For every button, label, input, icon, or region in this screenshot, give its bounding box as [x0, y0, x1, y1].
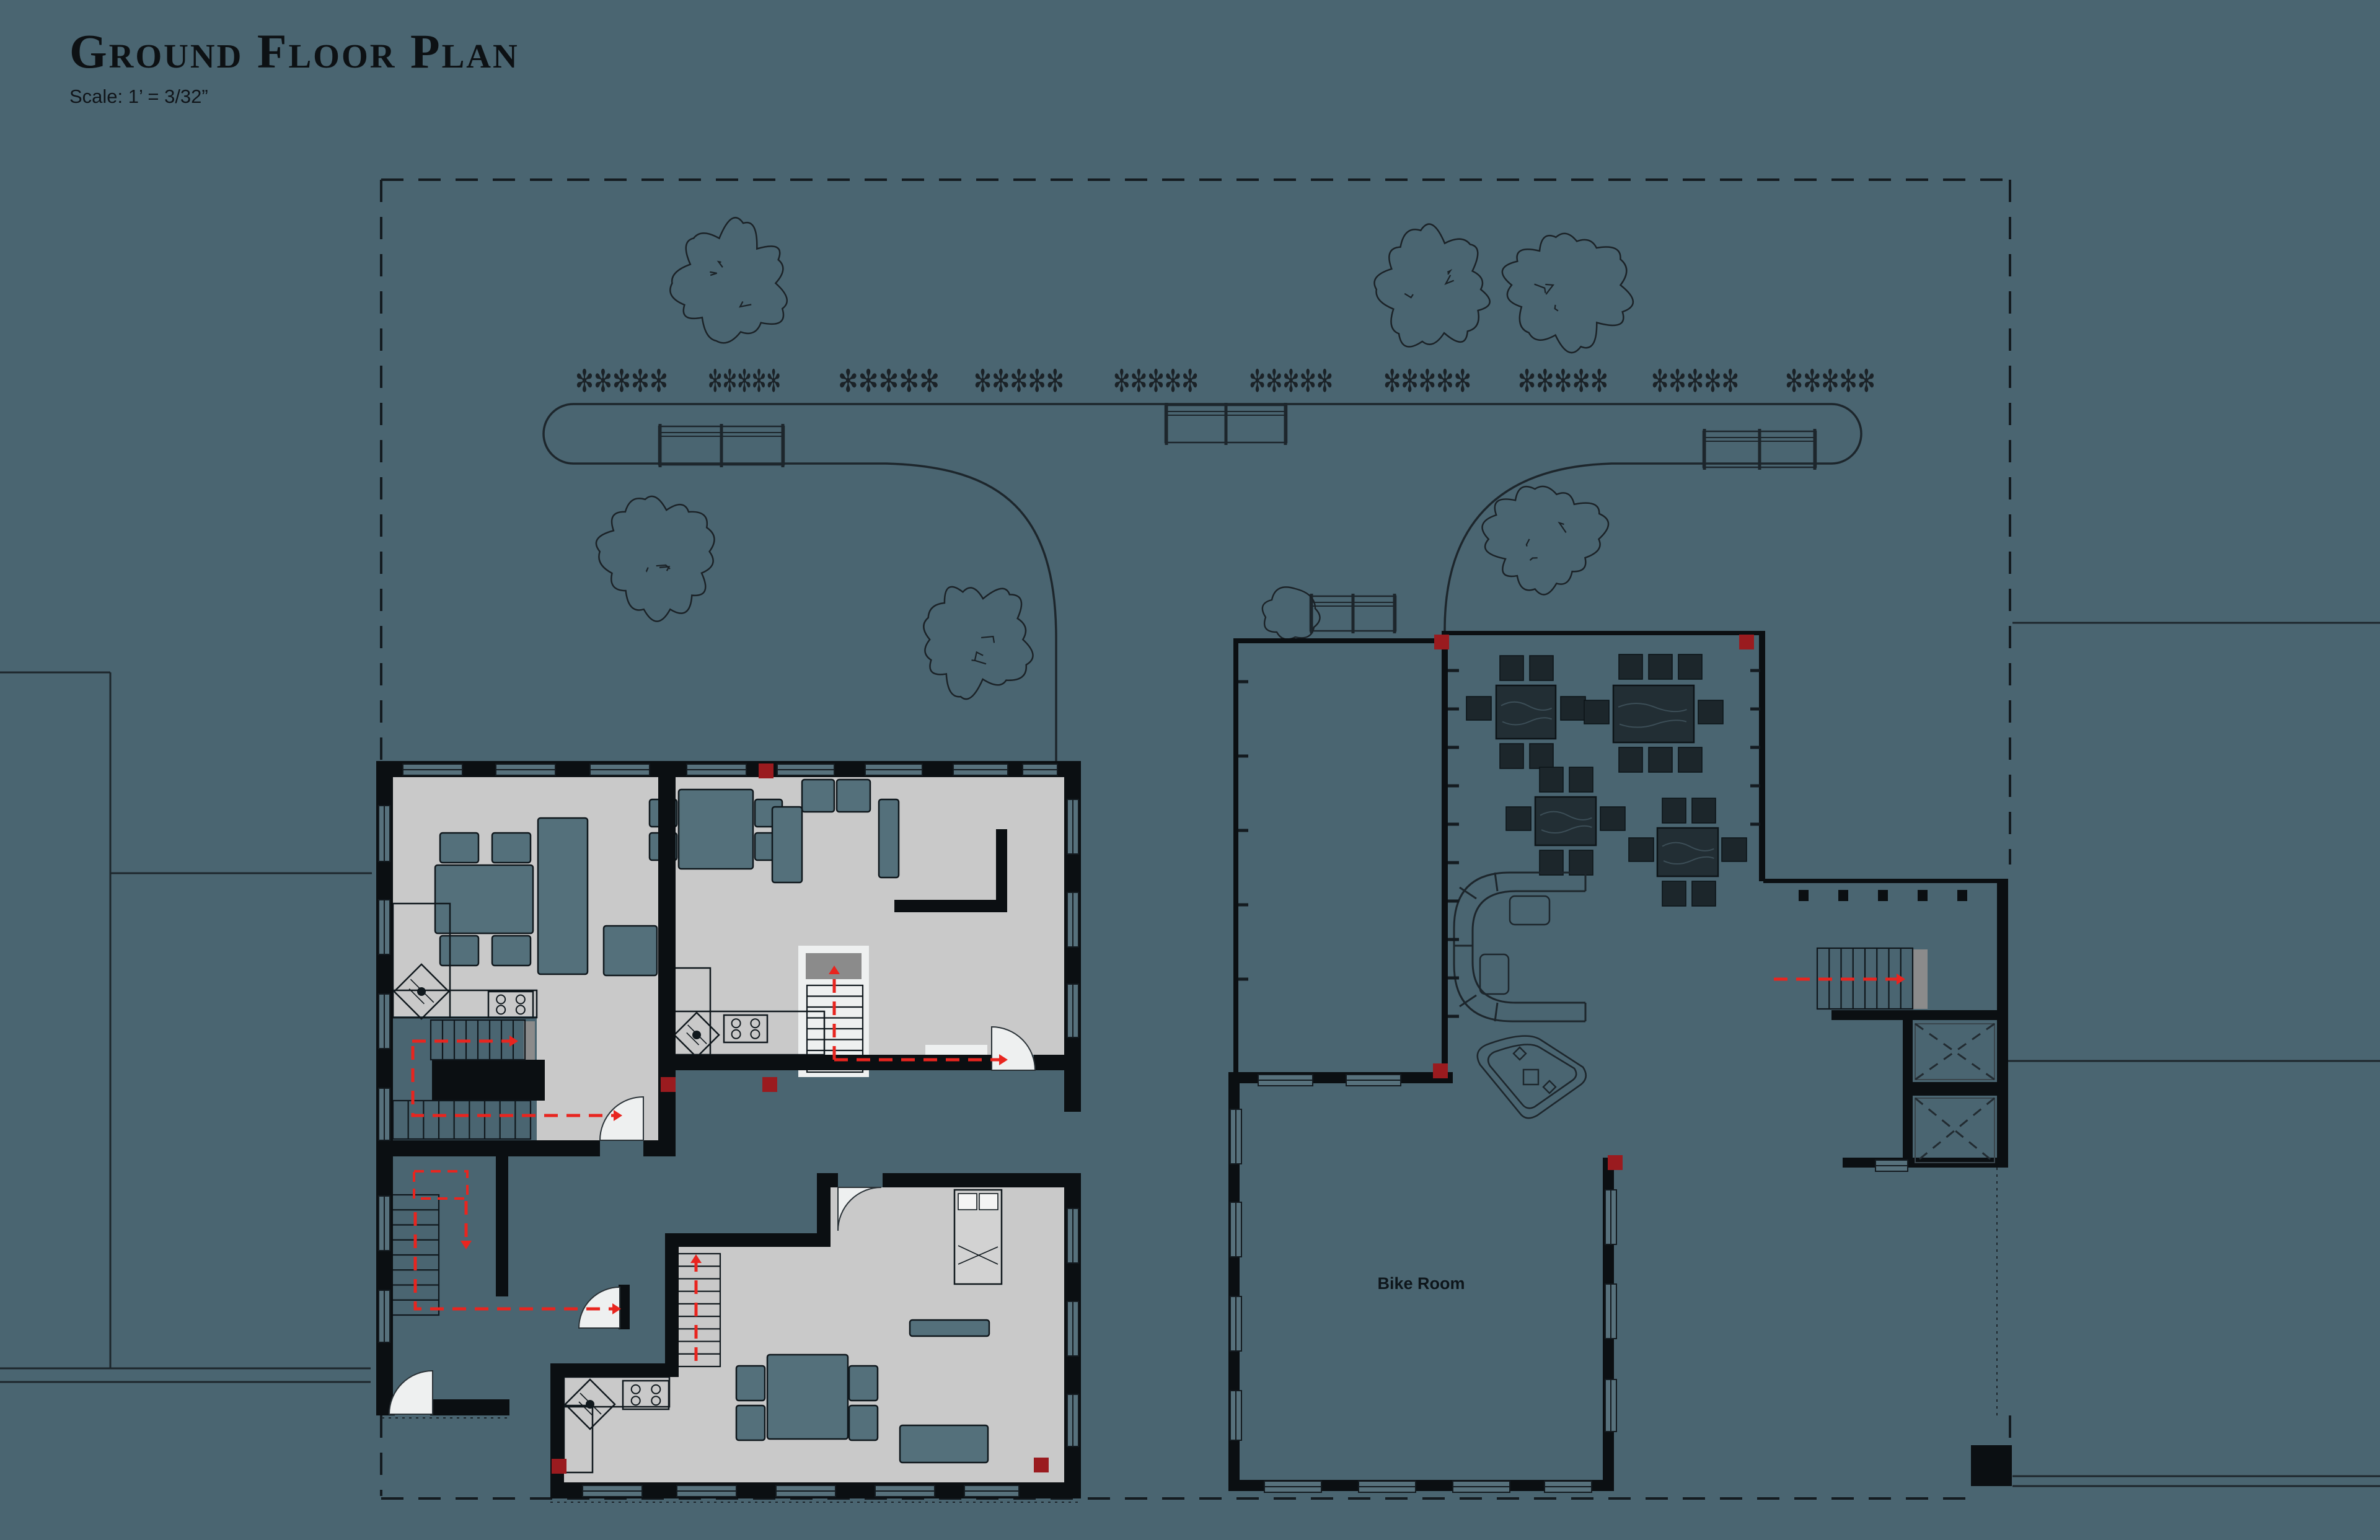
tree-branch-icon: [1404, 294, 1413, 297]
tree-icon: [1375, 224, 1490, 347]
furniture-item: [849, 1366, 878, 1401]
furniture-item: [879, 799, 899, 878]
sink-drain: [417, 987, 426, 996]
tree-icon: [670, 218, 787, 343]
egress-path: [415, 1212, 612, 1309]
picnic-chair: [1662, 798, 1686, 823]
stair-flight: [393, 1101, 531, 1139]
sink-drain: [692, 1031, 701, 1039]
wall: [643, 1140, 676, 1156]
wall: [430, 1399, 509, 1415]
picnic-table: [1535, 797, 1596, 845]
furniture-item: [910, 1320, 989, 1336]
wall: [1913, 1082, 1997, 1096]
site-corner-marker: [1971, 1445, 2012, 1486]
tree-branch-icon: [1559, 523, 1566, 533]
bench-planter-diamond: [1543, 1081, 1556, 1093]
floor-plan-drawing: ✻✻✻✻✻✻✻✻✻✻✻✻✻✻✻✻✻✻✻✻✻✻✻✻✻✻✻✻✻✻✻✻✻✻✻✻✻✻✻✻…: [0, 0, 2380, 1540]
tree-branch-icon: [1527, 539, 1530, 547]
picnic-chair: [1678, 747, 1702, 772]
hedge-row-icon: ✻✻✻✻✻: [1651, 363, 1739, 399]
furniture-item: [900, 1425, 988, 1463]
tree-branch-icon: [975, 652, 983, 660]
wall: [550, 1363, 679, 1377]
picnic-chair: [1619, 747, 1642, 772]
hedge-row-icon: ✻✻✻✻✻: [1785, 363, 1875, 399]
structural-column: [1433, 1063, 1448, 1078]
wall: [393, 1140, 600, 1156]
tree-icon: [1502, 234, 1633, 353]
picnic-table: [1496, 685, 1556, 739]
furniture-item: [772, 807, 802, 882]
tree-branch-icon: [646, 568, 648, 571]
wall: [883, 1173, 1081, 1187]
stair-landing: [1913, 949, 1928, 1009]
elevator-shaft: [1915, 1024, 1994, 1080]
wall: [1442, 631, 1448, 1075]
tree-branch-icon: [718, 262, 723, 267]
tree-branch-icon: [1545, 284, 1553, 294]
wall: [1997, 879, 2008, 1168]
picnic-chair: [1692, 798, 1716, 823]
tree-branch-icon: [1530, 558, 1537, 560]
page-title: Ground Floor Plan: [69, 26, 519, 77]
organic-bench-outline: [1478, 1036, 1586, 1119]
furniture-item: [440, 833, 478, 863]
wall: [894, 900, 1007, 912]
picnic-chair: [1500, 744, 1523, 768]
sectional-sofa-outline: [1473, 891, 1585, 1003]
picnic-chair: [1649, 654, 1672, 679]
wall: [1034, 1055, 1081, 1070]
picnic-chair: [1629, 838, 1654, 861]
hedge-row-icon: ✻✻✻✻✻: [708, 363, 781, 399]
sectional-sofa-outline: [1495, 1003, 1497, 1021]
structural-column: [1034, 1458, 1049, 1472]
picnic-chair: [1569, 850, 1593, 875]
picnic-chair: [1678, 654, 1702, 679]
furniture-item: [837, 780, 870, 812]
wall: [1903, 1020, 1913, 1168]
picnic-table: [1657, 828, 1718, 876]
structural-column: [759, 763, 773, 778]
stair-landing: [806, 953, 862, 979]
picnic-chair: [1619, 654, 1642, 679]
furniture-item: [849, 1406, 878, 1440]
hedge-row-icon: ✻✻✻✻✻: [1383, 363, 1471, 399]
sectional-sofa-outline: [1495, 873, 1497, 891]
tree-branch-icon: [1535, 284, 1546, 293]
door-swing: [389, 1371, 433, 1414]
picnic-chair: [1584, 700, 1609, 724]
wall: [1759, 631, 1765, 881]
wall: [1799, 890, 1809, 901]
sofa-cushion: [1510, 896, 1549, 925]
wall: [665, 1233, 831, 1247]
tree-branch-icon: [1555, 305, 1558, 311]
picnic-chair: [1698, 700, 1723, 724]
wall: [1918, 890, 1928, 901]
scale-note: Scale: 1’ = 3/32”: [69, 86, 519, 108]
furniture-item: [492, 936, 531, 966]
furniture-item: [440, 936, 478, 966]
picnic-table: [1613, 685, 1694, 742]
wall: [658, 777, 676, 1078]
structural-column: [1739, 635, 1754, 649]
furniture-item: [604, 926, 657, 975]
wall: [1878, 890, 1888, 901]
picnic-chair: [1506, 807, 1531, 830]
picnic-chair: [1530, 656, 1553, 680]
sofa-cushion: [1480, 954, 1509, 994]
title-block: Ground Floor Plan Scale: 1’ = 3/32”: [69, 26, 519, 108]
tree-branch-icon: [1446, 275, 1454, 284]
egress-arrowhead: [461, 1241, 472, 1249]
furniture-item: [679, 790, 753, 869]
picnic-chair: [1561, 697, 1585, 720]
wall: [996, 829, 1007, 912]
furniture-item: [492, 833, 531, 863]
structural-column: [552, 1459, 566, 1474]
wall: [665, 1233, 679, 1377]
elevator-x: [1915, 1024, 1994, 1080]
picnic-chair: [1692, 881, 1716, 906]
wall: [496, 1156, 508, 1296]
wall: [1957, 890, 1967, 901]
furniture-item: [736, 1366, 765, 1401]
furniture-item: [802, 780, 834, 812]
bench-table-square: [1523, 1070, 1538, 1085]
furniture-item: [736, 1406, 765, 1440]
bike-room-label: Bike Room: [1368, 1274, 1474, 1293]
tree-icon: [923, 587, 1033, 699]
picnic-chair: [1466, 697, 1491, 720]
picnic-chair: [1540, 767, 1563, 792]
structural-column: [661, 1077, 676, 1092]
tree-branch-icon: [710, 272, 716, 275]
wall: [1831, 1010, 2008, 1020]
picnic-chair: [1530, 744, 1553, 768]
structural-column: [762, 1077, 777, 1092]
hedge-row-icon: ✻✻✻✻✻: [1518, 363, 1608, 399]
picnic-chair: [1600, 807, 1625, 830]
driveway-path: [1445, 404, 1861, 633]
elevator-x: [1915, 1024, 1994, 1080]
kitchen-island: [432, 1060, 545, 1101]
structural-column: [1608, 1155, 1623, 1170]
hedge-row-icon: ✻✻✻✻✻: [1249, 363, 1333, 399]
wall: [1233, 638, 1238, 1076]
structural-column: [1434, 635, 1449, 649]
picnic-chair: [1540, 850, 1563, 875]
hedge-row-icon: ✻✻✻✻✻: [838, 363, 940, 399]
floor-plan-canvas: ✻✻✻✻✻✻✻✻✻✻✻✻✻✻✻✻✻✻✻✻✻✻✻✻✻✻✻✻✻✻✻✻✻✻✻✻✻✻✻✻…: [0, 0, 2380, 1540]
sectional-sofa-outline: [1454, 873, 1585, 1021]
sink-drain: [586, 1400, 594, 1409]
wall: [1763, 879, 2008, 883]
hedge-row-icon: ✻✻✻✻✻: [575, 363, 668, 399]
tree-branch-icon: [981, 636, 994, 643]
tree-icon: [1483, 486, 1609, 595]
wall: [1233, 638, 1444, 643]
picnic-chair: [1500, 656, 1523, 680]
wall: [1444, 631, 1763, 635]
picnic-chair: [1722, 838, 1747, 861]
bench-planter-diamond: [1514, 1047, 1526, 1060]
hedge-row-icon: ✻✻✻✻✻: [974, 363, 1064, 399]
picnic-chair: [1662, 881, 1686, 906]
bed-pillow: [979, 1194, 998, 1210]
tree-branch-icon: [972, 660, 986, 664]
furniture-item: [538, 818, 588, 974]
furniture-item: [767, 1355, 848, 1439]
wall: [1838, 890, 1848, 901]
tree-icon: [596, 496, 715, 622]
tree-branch-icon: [659, 566, 669, 571]
hedge-row-icon: ✻✻✻✻✻: [1113, 363, 1199, 399]
picnic-chair: [1569, 767, 1593, 792]
picnic-chair: [1649, 747, 1672, 772]
bed-pillow: [958, 1194, 977, 1210]
tree-branch-icon: [1447, 271, 1450, 275]
tree-branch-icon: [740, 301, 751, 306]
